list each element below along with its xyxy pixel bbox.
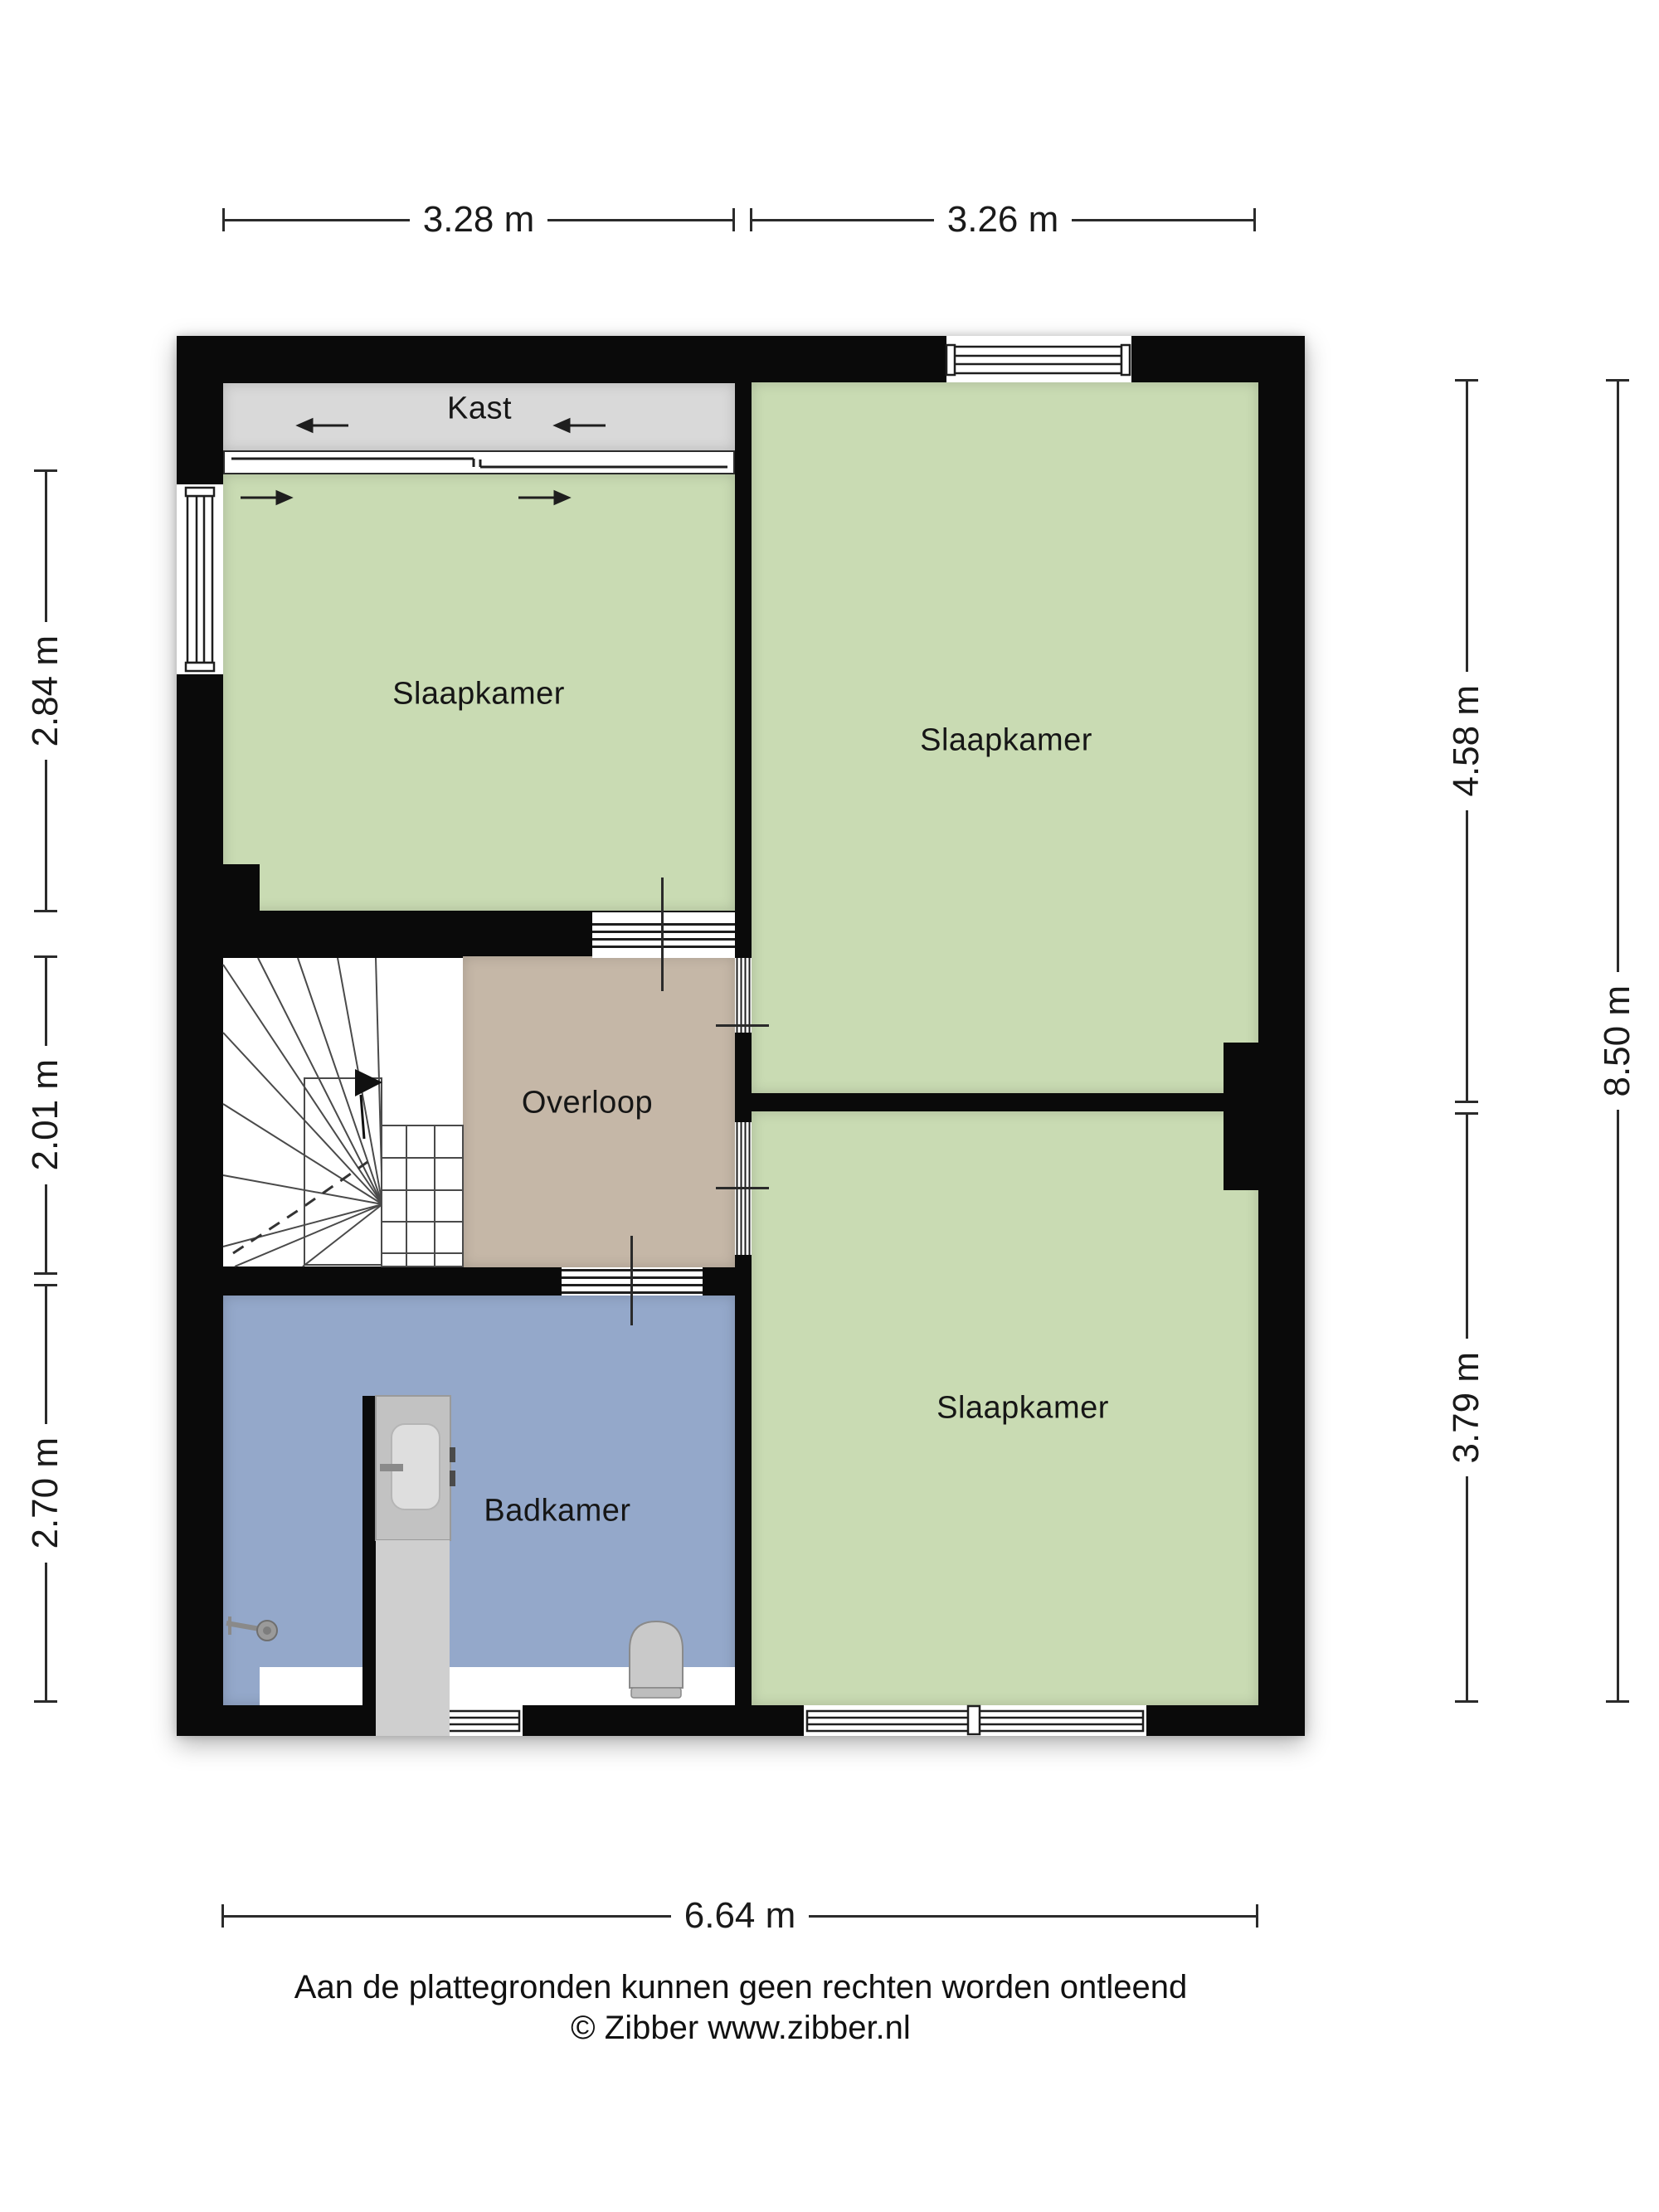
dim-label: 8.50 m <box>1597 972 1638 1111</box>
dim-right-inner-1: 4.58 m <box>1455 379 1478 1103</box>
dim-top-left: 3.28 m <box>222 208 735 231</box>
dim-bottom: 6.64 m <box>221 1904 1258 1928</box>
door-bedroom-topright <box>735 958 752 1033</box>
chimney-block <box>1224 1043 1258 1190</box>
dim-left-2: 2.01 m <box>34 955 57 1275</box>
dim-top-right: 3.26 m <box>750 208 1256 231</box>
dim-label: 2.70 m <box>25 1424 66 1563</box>
door-tick <box>716 1024 769 1027</box>
label-kast: Kast <box>447 391 512 427</box>
dim-left-3: 2.70 m <box>34 1284 57 1703</box>
dim-right-inner-2: 3.79 m <box>1455 1112 1478 1703</box>
dim-left-1: 2.84 m <box>34 469 57 912</box>
dim-label: 3.28 m <box>410 199 548 241</box>
window-left <box>177 484 223 674</box>
dim-label: 4.58 m <box>1446 672 1487 810</box>
dim-right-outer: 8.50 m <box>1606 379 1629 1703</box>
label-overloop: Overloop <box>522 1086 653 1121</box>
badkamer-floor-strip <box>260 1667 735 1705</box>
wall-notch <box>223 864 260 911</box>
window-bedroom-bottom <box>804 1705 1146 1736</box>
window-top <box>946 336 1131 382</box>
floor-plan: Kast Slaapkamer Slaapkamer Overloop Badk… <box>177 336 1305 1736</box>
door-tick <box>661 878 664 991</box>
floorplan-page: Kast Slaapkamer Slaapkamer Overloop Badk… <box>0 0 1659 2212</box>
dim-label: 3.26 m <box>934 199 1073 241</box>
footer-credit: © Zibber www.zibber.nl <box>0 2008 1481 2049</box>
door-tick <box>630 1236 633 1325</box>
window-bathroom <box>377 1705 523 1736</box>
footer: Aan de plattegronden kunnen geen rechten… <box>0 1967 1481 2049</box>
room-badkamer <box>223 1296 735 1705</box>
label-slaapkamer-top-right: Slaapkamer <box>920 723 1092 759</box>
stairwell <box>223 958 463 1266</box>
door-bedroom-topleft <box>592 912 735 958</box>
kast-sliding-door-track <box>223 450 735 474</box>
dim-label: 6.64 m <box>671 1895 810 1937</box>
dim-label: 3.79 m <box>1446 1339 1487 1477</box>
dim-label: 2.84 m <box>25 622 66 761</box>
label-slaapkamer-bottom-right: Slaapkamer <box>937 1391 1109 1427</box>
label-badkamer: Badkamer <box>484 1494 630 1529</box>
dim-label: 2.01 m <box>25 1046 66 1184</box>
door-tick <box>716 1187 769 1189</box>
footer-disclaimer: Aan de plattegronden kunnen geen rechten… <box>0 1967 1481 2008</box>
label-slaapkamer-top-left: Slaapkamer <box>392 677 565 712</box>
